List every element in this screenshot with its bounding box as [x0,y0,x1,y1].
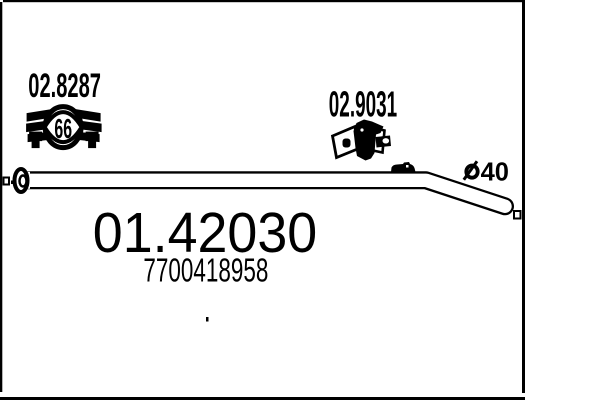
svg-text:02.9031: 02.9031 [329,85,397,125]
svg-text:66: 66 [54,114,72,145]
svg-text:7700418958: 7700418958 [143,252,268,290]
svg-text:02.8287: 02.8287 [28,66,101,104]
svg-text:40: 40 [481,158,509,186]
